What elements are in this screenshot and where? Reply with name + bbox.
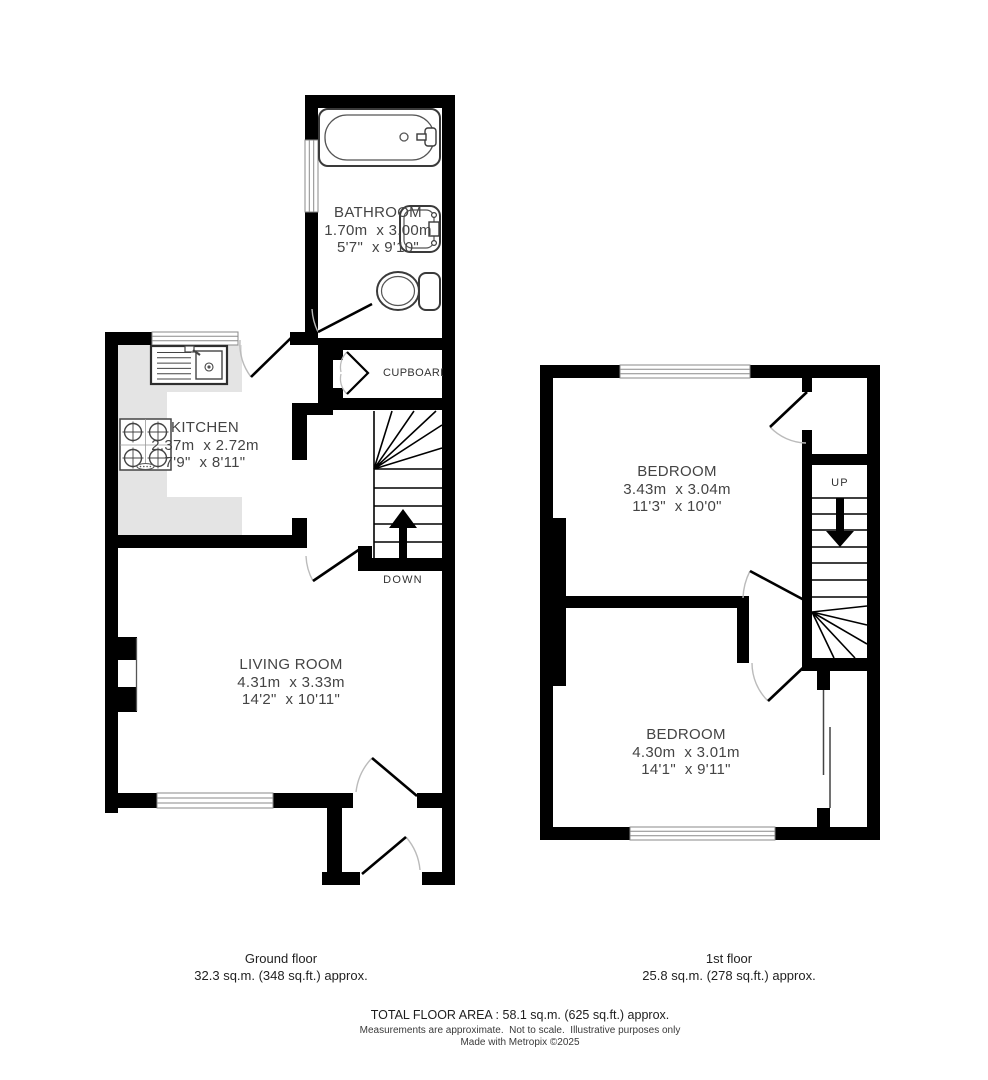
floorplan-graphics	[0, 0, 988, 1080]
bathroom-window	[305, 140, 318, 212]
room-dim-metric: 4.31m x 3.33m	[171, 674, 411, 692]
room-name: KITCHEN	[85, 419, 325, 437]
kitchen-window	[152, 332, 238, 345]
stairs-up-label: UP	[810, 477, 870, 489]
bedroom1-window	[620, 365, 750, 378]
room-label-bathroom: BATHROOM 1.70m x 3.00m 5'7" x 9'10"	[258, 204, 498, 257]
kitchen-back-door	[240, 336, 293, 377]
room-name: BEDROOM	[566, 726, 806, 744]
first-floor-area: 25.8 sq.m. (278 sq.ft.) approx.	[609, 968, 849, 985]
bedroom2-window	[630, 827, 775, 840]
room-dim-imperial: 14'1" x 9'11"	[566, 761, 806, 779]
room-dim-metric: 3.43m x 3.04m	[557, 481, 797, 499]
first-floor-caption: 1st floor 25.8 sq.m. (278 sq.ft.) approx…	[609, 951, 849, 984]
bathtub	[319, 109, 440, 166]
ground-floor-caption: Ground floor 32.3 sq.m. (348 sq.ft.) app…	[161, 951, 401, 984]
first-floor-title: 1st floor	[609, 951, 849, 968]
room-dim-metric: 1.70m x 3.00m	[258, 222, 498, 240]
bedroom2-door	[752, 663, 806, 701]
stairs-down-label: DOWN	[372, 574, 434, 586]
ground-staircase	[374, 411, 442, 563]
cupboard-label: CUPBOARD	[383, 367, 443, 379]
alcove-line	[824, 690, 831, 808]
disclaimer-text: Measurements are approximate. Not to sca…	[270, 1025, 770, 1036]
room-dim-imperial: 5'7" x 9'10"	[258, 239, 498, 257]
kitchen-sink	[151, 346, 227, 384]
room-name: LIVING ROOM	[171, 656, 411, 674]
stairs-down-arrow	[826, 498, 854, 547]
living-room-door	[306, 549, 360, 581]
room-dim-imperial: 11'3" x 10'0"	[557, 498, 797, 516]
bathroom-door	[312, 304, 372, 332]
room-label-living-room: LIVING ROOM 4.31m x 3.33m 14'2" x 10'11"	[171, 656, 411, 709]
stairs-up-arrow	[389, 509, 417, 563]
ground-floor-title: Ground floor	[161, 951, 401, 968]
room-dim-imperial: 14'2" x 10'11"	[171, 691, 411, 709]
living-room-window	[157, 793, 273, 808]
room-label-bedroom1: BEDROOM 3.43m x 3.04m 11'3" x 10'0"	[557, 463, 797, 516]
bedroom1-top-door	[770, 392, 807, 443]
room-dim-metric: 4.30m x 3.01m	[566, 744, 806, 762]
total-floor-area: TOTAL FLOOR AREA : 58.1 sq.m. (625 sq.ft…	[270, 1008, 770, 1022]
room-name: BATHROOM	[258, 204, 498, 222]
room-dim-metric: 2.37m x 2.72m	[85, 437, 325, 455]
first-floor-staircase	[812, 498, 867, 658]
hall-door	[356, 758, 417, 796]
floorplan-page: BATHROOM 1.70m x 3.00m 5'7" x 9'10" KITC…	[0, 0, 988, 1080]
bedroom1-landing-door	[743, 571, 806, 601]
front-door	[362, 837, 420, 874]
room-dim-imperial: 7'9" x 8'11"	[85, 454, 325, 472]
first-floor-doors	[743, 392, 807, 701]
credit-text: Made with Metropix ©2025	[270, 1037, 770, 1048]
cupboard-bifold-door	[340, 352, 368, 394]
room-label-kitchen: KITCHEN 2.37m x 2.72m 7'9" x 8'11"	[85, 419, 325, 472]
ground-floor-area: 32.3 sq.m. (348 sq.ft.) approx.	[161, 968, 401, 985]
toilet	[377, 272, 440, 310]
room-label-bedroom2: BEDROOM 4.30m x 3.01m 14'1" x 9'11"	[566, 726, 806, 779]
room-name: BEDROOM	[557, 463, 797, 481]
